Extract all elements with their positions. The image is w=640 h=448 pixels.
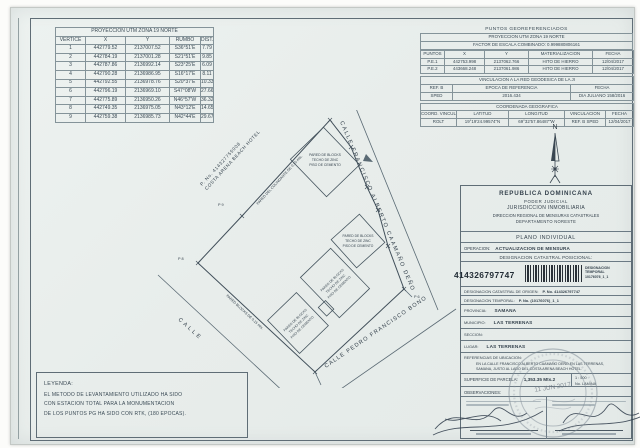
utm-projection-table: PROYECCION UTM ZONA 19 NORTE VERTICEXYRU…	[55, 27, 213, 123]
table-cell: S36°51'E	[170, 45, 201, 54]
table-row: 2442784.192137001.28S21°51'E9.85	[56, 53, 214, 62]
barcode-row: 414326797747 DESIGNACION TEMPORAL 101760…	[461, 261, 631, 286]
svg-text:TECHO DE ZINC: TECHO DE ZINC	[345, 239, 371, 243]
designacion-origen-row: DESIGNACION CATASTRAL DE ORIGEN:P. No. 4…	[461, 286, 631, 295]
point-label-p9: P 9	[218, 203, 224, 207]
designacion-posicional-label: DESIGNACION CATASTRAL POSICIONAL:	[461, 252, 631, 261]
geo-points-body: P.E.1442753.9982137062.766HITO DE HIERRO…	[421, 58, 634, 74]
corner-tick	[315, 372, 321, 385]
designacion-temporal-label: DESIGNACION TEMPORAL	[585, 266, 630, 275]
table-cell: HITO DE HIERRO	[529, 66, 593, 74]
table-row: 1442779.522137007.52S36°51'E7.79	[56, 45, 214, 54]
country-title: REPUBLICA DOMINICANA	[464, 190, 628, 197]
origen-value: P. No. 414326797747	[543, 289, 581, 294]
table-cell: N46°57'W	[170, 96, 201, 105]
org-jurisdiccion: JURISDICCION INMOBILIARIA	[464, 205, 628, 211]
street-name-ne: CALLE FRANCISCO ALBERTO CAAMAÑO DEÑO	[338, 120, 417, 293]
table-cell: P.E.2	[421, 66, 445, 74]
table-cell: 2137001.28	[126, 53, 170, 62]
north-arrow: N	[544, 124, 566, 188]
table-row: P.E.1442753.9982137062.766HITO DE HIERRO…	[421, 58, 634, 66]
table-cell: 27.66	[201, 88, 214, 97]
utm-table-title: PROYECCION UTM ZONA 19 NORTE	[56, 28, 214, 37]
table-row: 5442792.552136978.76S20°37'E10.33	[56, 79, 214, 88]
point-label-p6: P 6	[414, 295, 420, 299]
table-cell: 442753.998	[445, 58, 485, 66]
legend-line-1: EL METODO DE LEVANTAMIENTO UTILIZADO HA …	[44, 391, 240, 400]
site-plan-drawing: CALLE FRANCISCO ALBERTO CAAMAÑO DEÑO CAL…	[30, 110, 460, 388]
table-header-cell: X	[445, 50, 485, 58]
table-cell: 7.79	[201, 45, 214, 54]
neighbor-parcel-name: COSTA ARENA BEACH HOTEL	[204, 129, 261, 191]
legend-title: LEYENDA:	[44, 381, 240, 387]
svg-text:PARED DE BLOCKS: PARED DE BLOCKS	[343, 234, 375, 238]
provincia-value: SAMANA	[494, 308, 516, 313]
table-header-cell: FECHA	[606, 111, 634, 119]
title-block-header: REPUBLICA DOMINICANA PODER JUDICIAL JURI…	[461, 186, 631, 231]
table-cell: 442790.28	[86, 70, 126, 79]
designacion-temporal-box: DESIGNACION TEMPORAL 10176076_1_1	[585, 266, 630, 279]
table-header-cell: Y	[485, 50, 529, 58]
table-cell: 6	[56, 88, 86, 97]
geo-subtitle: PROYECCION UTM ZONA 19 NORTE	[421, 34, 633, 42]
operacion-row: OPERACION:ACTUALIZACION DE MENSURA	[461, 242, 631, 252]
vinculacion-title: VINCULACION A LA RED GEODESICA DE LA JI	[421, 77, 634, 85]
table-cell: 2	[56, 53, 86, 62]
neighbor-parcel-label: P. No. 414327755008 COSTA ARENA BEACH HO…	[199, 125, 261, 191]
table-cell: 1	[56, 45, 86, 54]
barcode	[525, 265, 583, 282]
table-header-cell: REF. B	[421, 85, 453, 93]
table-cell: 442796.19	[86, 88, 126, 97]
table-cell: 2137061.986	[485, 66, 529, 74]
municipio-row: MUNICIPIO:LAS TERRENAS	[461, 316, 631, 328]
svg-text:TECHO DE ZINC: TECHO DE ZINC	[312, 158, 339, 162]
table-cell: 2136969.10	[126, 88, 170, 97]
table-header-cell: 2016.434	[453, 92, 571, 100]
legend-line-2: CON ESTACION TOTAL PARA LA MONUMENTACION	[44, 400, 240, 409]
table-header-cell: MATERIALIZACION	[529, 50, 593, 58]
temporal-value: P. No. (10176076)_1_1	[519, 298, 559, 303]
street-direction-arrow	[363, 154, 373, 162]
table-cell: 6.09	[201, 62, 214, 71]
ref-value-row: SPED2016.434DIA JULIANO 158/2016	[421, 92, 634, 100]
table-header-cell: VERTICE	[56, 36, 86, 45]
ref-header-row: REF. BEPOCA DE REFERENCIAFECHA	[421, 85, 634, 93]
table-cell: 7	[56, 96, 86, 105]
table-cell: 8.11	[201, 70, 214, 79]
table-cell: 4	[56, 70, 86, 79]
legend-line-3: DE LOS PUNTOS PG HA SIDO CON RTK, (180 E…	[44, 410, 240, 419]
table-cell: 2136978.76	[126, 79, 170, 88]
operacion-value: ACTUALIZACION DE MENSURA	[495, 246, 570, 251]
wall-label-sw: PARED BLOCKS DE 0.15 mts.	[225, 294, 264, 331]
north-label: N	[544, 124, 566, 131]
stamp-scribble	[533, 399, 575, 409]
designacion-temporal-row: DESIGNACION TEMPORAL:P. No. (10176076)_1…	[461, 295, 631, 304]
table-row: 7442775.892136950.26N46°57'W36.32	[56, 96, 214, 105]
table-cell: S16°17'E	[170, 70, 201, 79]
svg-text:PISO DE CEMENTO: PISO DE CEMENTO	[309, 163, 341, 167]
table-cell: P.E.1	[421, 58, 445, 66]
table-header-cell: VINCULACION	[565, 111, 606, 119]
illegible-text	[466, 404, 509, 406]
parcel-number: 414326797747	[454, 270, 515, 280]
table-cell: 442775.89	[86, 96, 126, 105]
table-cell: 442792.55	[86, 79, 126, 88]
svg-text:PARED DE BLOCKS: PARED DE BLOCKS	[309, 153, 342, 157]
table-cell: 3	[56, 62, 86, 71]
table-header-cell: LONGITUD	[509, 111, 565, 119]
table-cell: S23°25'E	[170, 62, 201, 71]
building-1-label: PARED DE BLOCKSTECHO DE ZINCPISO DE CEME…	[309, 153, 342, 167]
street-name-se: CALLE PEDRO FRANCISCO BONO	[324, 295, 429, 370]
table-cell: 2136992.14	[126, 62, 170, 71]
table-cell: HITO DE HIERRO	[529, 58, 593, 66]
table-header-cell: LATITUD	[457, 111, 509, 119]
geo-title: PUNTOS GEOREFERENCIADOS	[420, 27, 633, 32]
provincia-row: PROVINCIA:SAMANA	[461, 304, 631, 316]
provincia-label: PROVINCIA:	[464, 308, 486, 313]
org-departamento: DEPARTAMENTO NORESTE	[464, 219, 628, 224]
table-header-cell: PUNTOS	[421, 50, 445, 58]
table-cell: 10.33	[201, 79, 214, 88]
table-cell: 12/04/2017	[593, 66, 634, 74]
building-3-label: PARED DE BLOCKSTECHO DE ZINCPISO DE CEME…	[320, 267, 353, 299]
table-cell: 9.85	[201, 53, 214, 62]
cadastral-plan-scan: PROYECCION UTM ZONA 19 NORTE VERTICEXYRU…	[0, 0, 640, 448]
official-stamp: 11 JUN 2017	[505, 345, 601, 441]
table-cell: 443668.248	[445, 66, 485, 74]
table-cell: 442779.52	[86, 45, 126, 54]
table-header-cell: DIA JULIANO 158/2016	[571, 92, 634, 100]
table-header-cell: RUMBO	[170, 36, 201, 45]
org-poder-judicial: PODER JUDICIAL	[464, 199, 628, 204]
table-cell: S47°08'W	[170, 88, 201, 97]
lugar-label: LUGAR:	[464, 344, 479, 349]
table-cell: 12/04/2017	[593, 58, 634, 66]
table-cell: 36.32	[201, 96, 214, 105]
svg-text:PISO DE CEMENTO: PISO DE CEMENTO	[343, 244, 374, 248]
table-header-cell: EPOCA DE REFERENCIA	[453, 85, 571, 93]
table-header-cell: X	[86, 36, 126, 45]
document-type: PLANO INDIVIDUAL	[461, 231, 631, 242]
stamp-date: 11 JUN 2017	[534, 381, 572, 394]
table-header-cell: REF. B SPED	[565, 119, 606, 127]
building-4-label: PARED DE BLOCKSTECHO DE ZINCPISO DE CEME…	[283, 307, 316, 339]
table-header-cell: SPED	[421, 92, 453, 100]
street-line-se	[302, 309, 456, 388]
table-cell: S20°37'E	[170, 79, 201, 88]
table-cell: 2137062.766	[485, 58, 529, 66]
table-cell: 5	[56, 79, 86, 88]
operacion-label: OPERACION:	[464, 246, 490, 251]
table-row: P.E.2443668.2482137061.986HITO DE HIERRO…	[421, 66, 634, 74]
utm-table-header-row: VERTICEXYRUMBODIST.	[56, 36, 214, 45]
table-row: 6442796.192136969.10S47°08'W27.66	[56, 88, 214, 97]
scale-factor: FACTOR DE ESCALA COMBINADO: 0.9998808061…	[421, 42, 633, 50]
wall-label-nw: PARED DEL COLINDANTE DE 0.15 mts.	[256, 154, 303, 205]
table-header-cell: FECHA	[593, 50, 634, 58]
building-2-label: PARED DE BLOCKSTECHO DE ZINCPISO DE CEME…	[343, 234, 375, 248]
north-arrow-icon	[544, 131, 566, 185]
neighbor-parcel-number: P. No. 414327755008	[199, 141, 241, 187]
street-line-ne	[355, 110, 438, 310]
origen-label: DESIGNACION CATASTRAL DE ORIGEN:	[464, 289, 539, 294]
table-header-cell: Y	[126, 36, 170, 45]
org-direccion-regional: DIRECCION REGIONAL DE MENSURAS CATASTRAL…	[464, 213, 628, 218]
municipio-value: LAS TERRENAS	[494, 320, 533, 325]
seccion-row: SECCION:	[461, 328, 631, 340]
table-cell: 2137007.52	[126, 45, 170, 54]
table-cell: 442784.19	[86, 53, 126, 62]
temporal-label: DESIGNACION TEMPORAL:	[464, 298, 515, 303]
geo-points-header-row: PUNTOSXYMATERIALIZACIONFECHA	[421, 50, 634, 58]
table-header-cell: 12/04/2017	[606, 119, 634, 127]
municipio-label: MUNICIPIO:	[464, 320, 486, 325]
table-row: 3442787.862136992.14S23°25'E6.09	[56, 62, 214, 71]
table-cell: 2136950.26	[126, 96, 170, 105]
sheet-fold-line	[18, 18, 19, 439]
street-name-sw: CALLE	[177, 317, 203, 342]
table-header-cell: FECHA	[571, 85, 634, 93]
table-row: 4442790.282136986.95S16°17'E8.11	[56, 70, 214, 79]
table-header-cell: 19°19'24.99574"N	[457, 119, 509, 127]
point-label-p8: P 8	[178, 257, 184, 261]
table-cell: 442787.86	[86, 62, 126, 71]
seccion-label: SECCION:	[464, 332, 483, 337]
table-cell: 2136986.95	[126, 70, 170, 79]
table-header-cell: DIST.	[201, 36, 214, 45]
table-cell: S21°51'E	[170, 53, 201, 62]
legend-box: LEYENDA: EL METODO DE LEVANTAMIENTO UTIL…	[36, 372, 248, 438]
observaciones-label: OBSERVACIONES:	[464, 390, 501, 395]
designacion-temporal-value: 10176076_1_1	[585, 275, 630, 279]
